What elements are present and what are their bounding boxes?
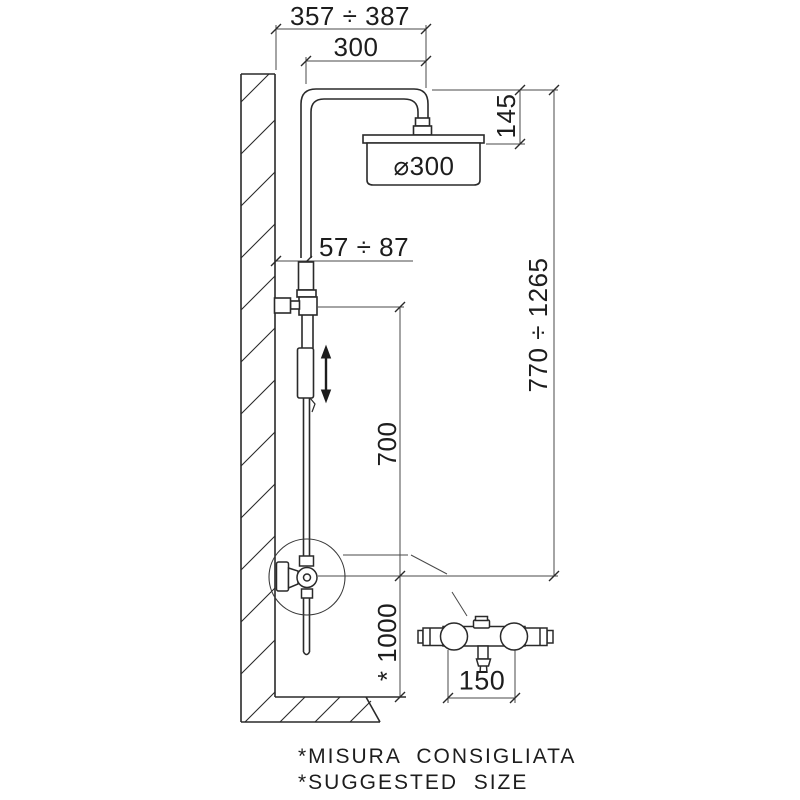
- slider-bracket-body: [299, 297, 317, 315]
- dim-label-head-drop: 145: [493, 94, 519, 139]
- inlet-hex-right: [525, 628, 547, 646]
- head-connector: [416, 118, 430, 126]
- inlet-stub-right: [547, 631, 553, 644]
- dim-label-wall-to-head-range: 357 ÷ 387: [290, 3, 410, 29]
- technical-drawing-page: 357 ÷ 387 300 145 ⌀300 57 ÷ 87 770 ÷ 126…: [0, 0, 800, 800]
- hand-shower-handle: [298, 348, 314, 398]
- floor-hatch: [280, 697, 371, 722]
- dim-label-column-height-range: 770 ÷ 1265: [525, 258, 551, 393]
- wall-section: [241, 74, 275, 722]
- dim-label-mixer-floor-height: * 1000: [374, 603, 400, 681]
- lower-union: [302, 589, 313, 598]
- dim-label-arm-projection: 300: [334, 34, 379, 60]
- up-down-arrow-icon: [322, 346, 331, 402]
- dim-label-wall-offset-range: 57 ÷ 87: [319, 234, 409, 260]
- wall-hatch: [241, 74, 275, 722]
- detail-leader-lines: [343, 555, 467, 616]
- note-english: *SUGGESTED SIZE: [298, 772, 528, 793]
- dim-label-head-diameter: ⌀300: [393, 153, 454, 179]
- hose-nub: [310, 398, 315, 412]
- outlet-body: [478, 646, 488, 659]
- wall-bracket-knob: [275, 298, 291, 313]
- riser-collar: [297, 290, 316, 297]
- riser-sleeve: [299, 262, 314, 290]
- pipe-union: [300, 556, 314, 566]
- mixer-knob-axis: [304, 574, 311, 581]
- mixer-cap-right: [501, 623, 528, 650]
- wall-bracket-stem: [291, 301, 300, 309]
- head-plate: [363, 135, 484, 143]
- mixer-side-view: [277, 556, 318, 598]
- dim-label-mixer-inlet-centers: 150: [459, 668, 506, 695]
- mixer-cap-left: [441, 623, 468, 650]
- dim-label-slide-travel: 700: [374, 422, 400, 467]
- mixer-wall-flange: [277, 562, 289, 591]
- note-italian: *MISURA CONSIGLIATA: [298, 746, 576, 767]
